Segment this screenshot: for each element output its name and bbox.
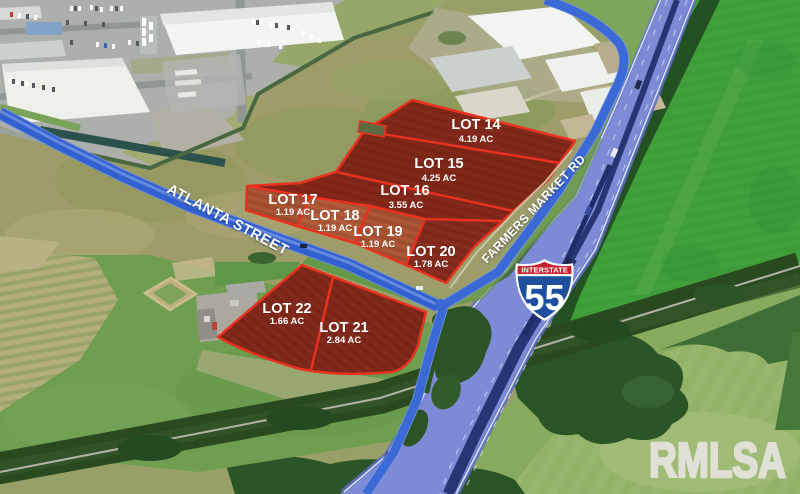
svg-text:1.78 AC: 1.78 AC xyxy=(414,259,449,270)
svg-text:LOT 21: LOT 21 xyxy=(319,320,368,336)
svg-text:LOT 14: LOT 14 xyxy=(451,117,500,133)
svg-text:4.25 AC: 4.25 AC xyxy=(422,173,457,184)
svg-text:LOT 17: LOT 17 xyxy=(268,192,317,208)
svg-text:LOT 22: LOT 22 xyxy=(262,301,311,317)
svg-text:RMLSA: RMLSA xyxy=(649,434,786,488)
svg-text:1.19 AC: 1.19 AC xyxy=(276,207,311,218)
svg-text:3.55 AC: 3.55 AC xyxy=(389,200,424,211)
svg-text:INTERSTATE: INTERSTATE xyxy=(521,265,568,274)
svg-text:1.19 AC: 1.19 AC xyxy=(361,239,396,250)
svg-text:1.66 AC: 1.66 AC xyxy=(270,316,305,327)
svg-text:2.84 AC: 2.84 AC xyxy=(327,335,362,346)
svg-text:LOT 20: LOT 20 xyxy=(406,244,455,260)
svg-text:LOT 16: LOT 16 xyxy=(380,183,429,199)
svg-text:LOT 15: LOT 15 xyxy=(414,156,463,172)
svg-text:55: 55 xyxy=(524,277,565,318)
svg-text:LOT 18: LOT 18 xyxy=(310,208,359,224)
svg-text:4.19 AC: 4.19 AC xyxy=(459,134,494,145)
svg-text:1.19 AC: 1.19 AC xyxy=(318,223,353,234)
svg-text:LOT 19: LOT 19 xyxy=(353,224,402,240)
